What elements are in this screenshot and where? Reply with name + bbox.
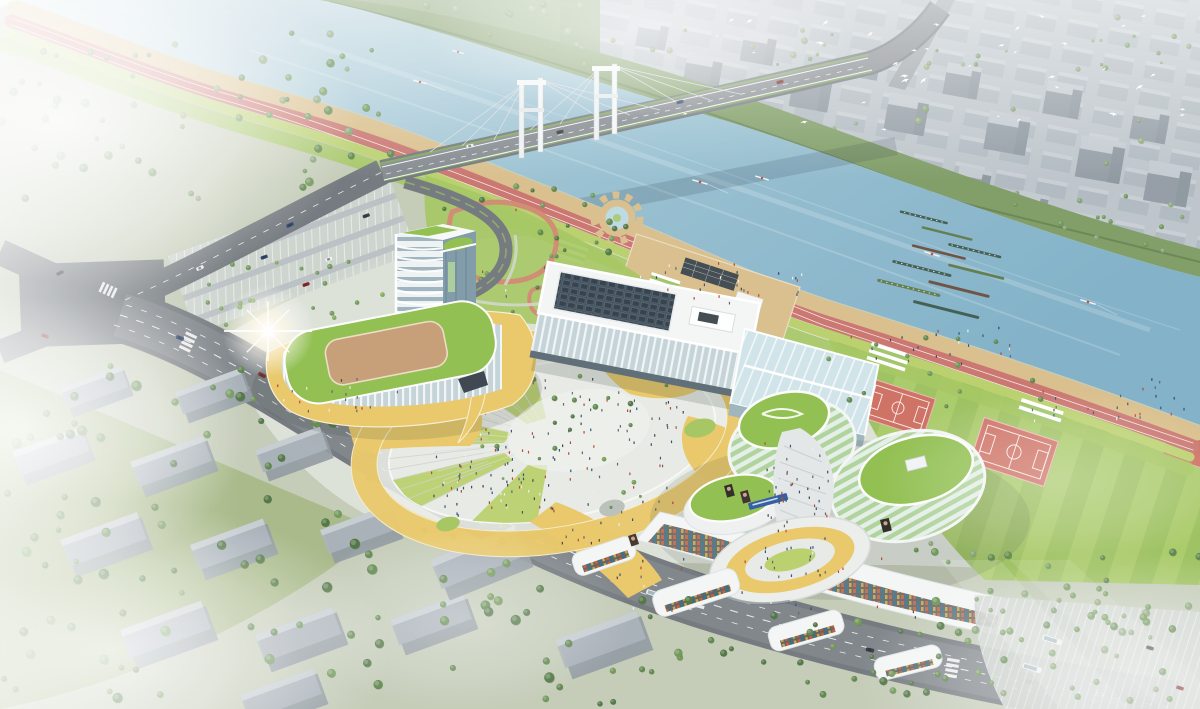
rendering-stage: Aerial architectural rendering of a rive… — [0, 0, 1200, 709]
fog-overlays — [0, 0, 1200, 709]
aerial-rendering: Aerial architectural rendering of a rive… — [0, 0, 1200, 709]
